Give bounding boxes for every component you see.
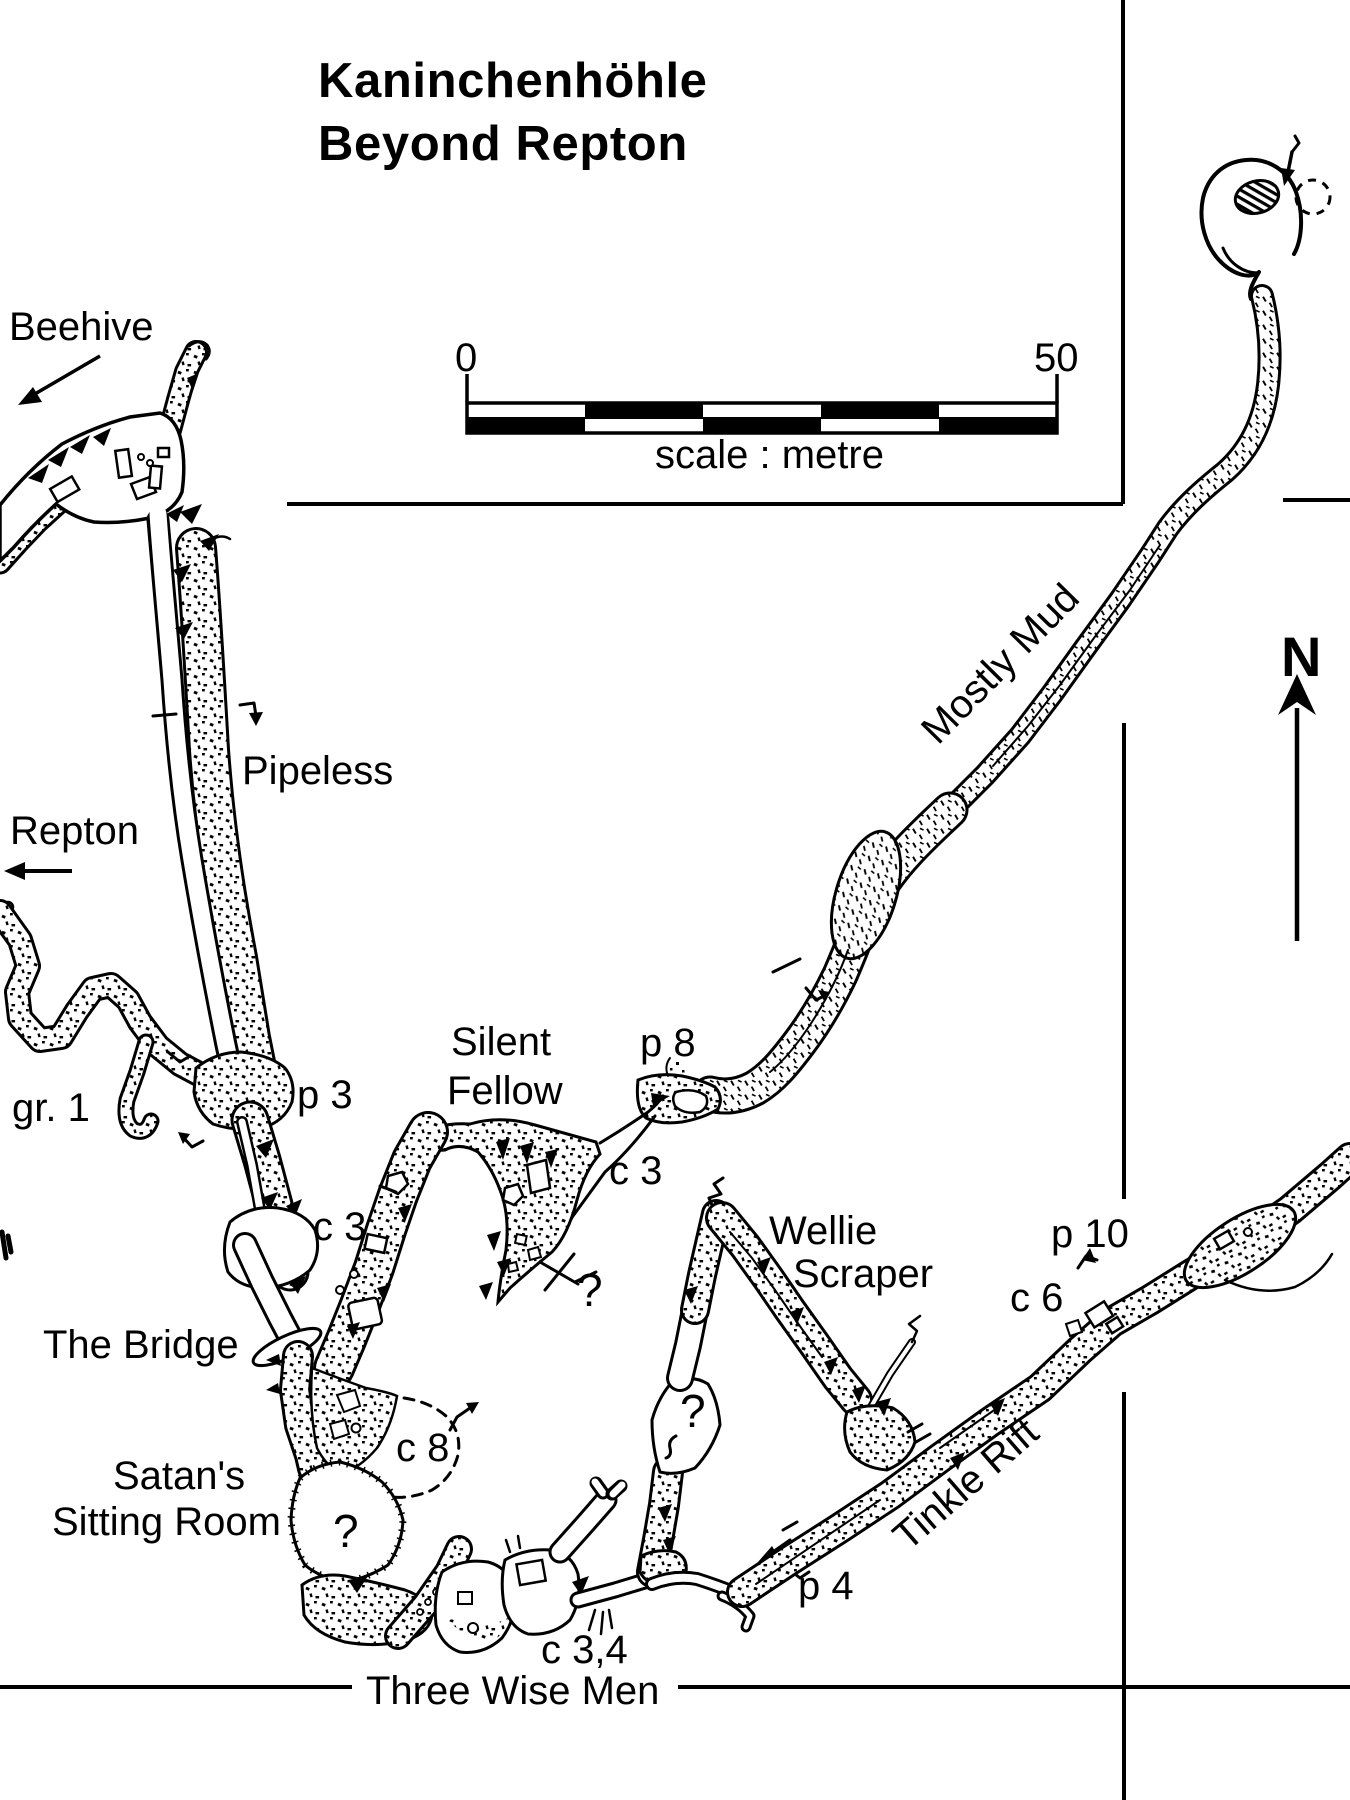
- svg-text:Beyond Repton: Beyond Repton: [318, 117, 688, 171]
- svg-text:c 8: c 8: [396, 1426, 449, 1470]
- svg-text:c 3: c 3: [313, 1205, 366, 1249]
- svg-text:p 10: p 10: [1051, 1212, 1129, 1256]
- svg-text:c 3,4: c 3,4: [541, 1628, 628, 1672]
- svg-text:Beehive: Beehive: [9, 305, 154, 349]
- svg-text:Scraper: Scraper: [793, 1252, 933, 1296]
- svg-text:gr. 1: gr. 1: [12, 1086, 90, 1130]
- svg-text:Wellie: Wellie: [769, 1209, 877, 1253]
- svg-text:Sitting Room: Sitting Room: [52, 1500, 281, 1544]
- svg-text:Satan's: Satan's: [113, 1454, 245, 1498]
- svg-text:scale : metre: scale : metre: [655, 433, 884, 477]
- svg-text:p 4: p 4: [798, 1564, 854, 1608]
- svg-text:c 6: c 6: [1010, 1276, 1063, 1320]
- svg-text:Repton: Repton: [10, 809, 139, 853]
- svg-text:c 3: c 3: [609, 1149, 662, 1193]
- svg-text:?: ?: [333, 1505, 359, 1557]
- svg-text:N: N: [1281, 625, 1321, 688]
- svg-text:Three Wise Men: Three Wise Men: [366, 1669, 659, 1713]
- svg-text:Kaninchenhöhle: Kaninchenhöhle: [318, 54, 708, 108]
- svg-text:50: 50: [1034, 336, 1079, 380]
- svg-text:The Bridge: The Bridge: [43, 1323, 239, 1367]
- svg-text:Pipeless: Pipeless: [242, 749, 393, 793]
- svg-text:p 8: p 8: [640, 1021, 696, 1065]
- svg-text:Silent: Silent: [451, 1020, 551, 1064]
- svg-text:?: ?: [577, 1264, 603, 1316]
- svg-text:p 3: p 3: [297, 1073, 353, 1117]
- svg-text:Fellow: Fellow: [447, 1069, 563, 1113]
- svg-text:?: ?: [680, 1385, 706, 1437]
- svg-text:0: 0: [455, 336, 477, 380]
